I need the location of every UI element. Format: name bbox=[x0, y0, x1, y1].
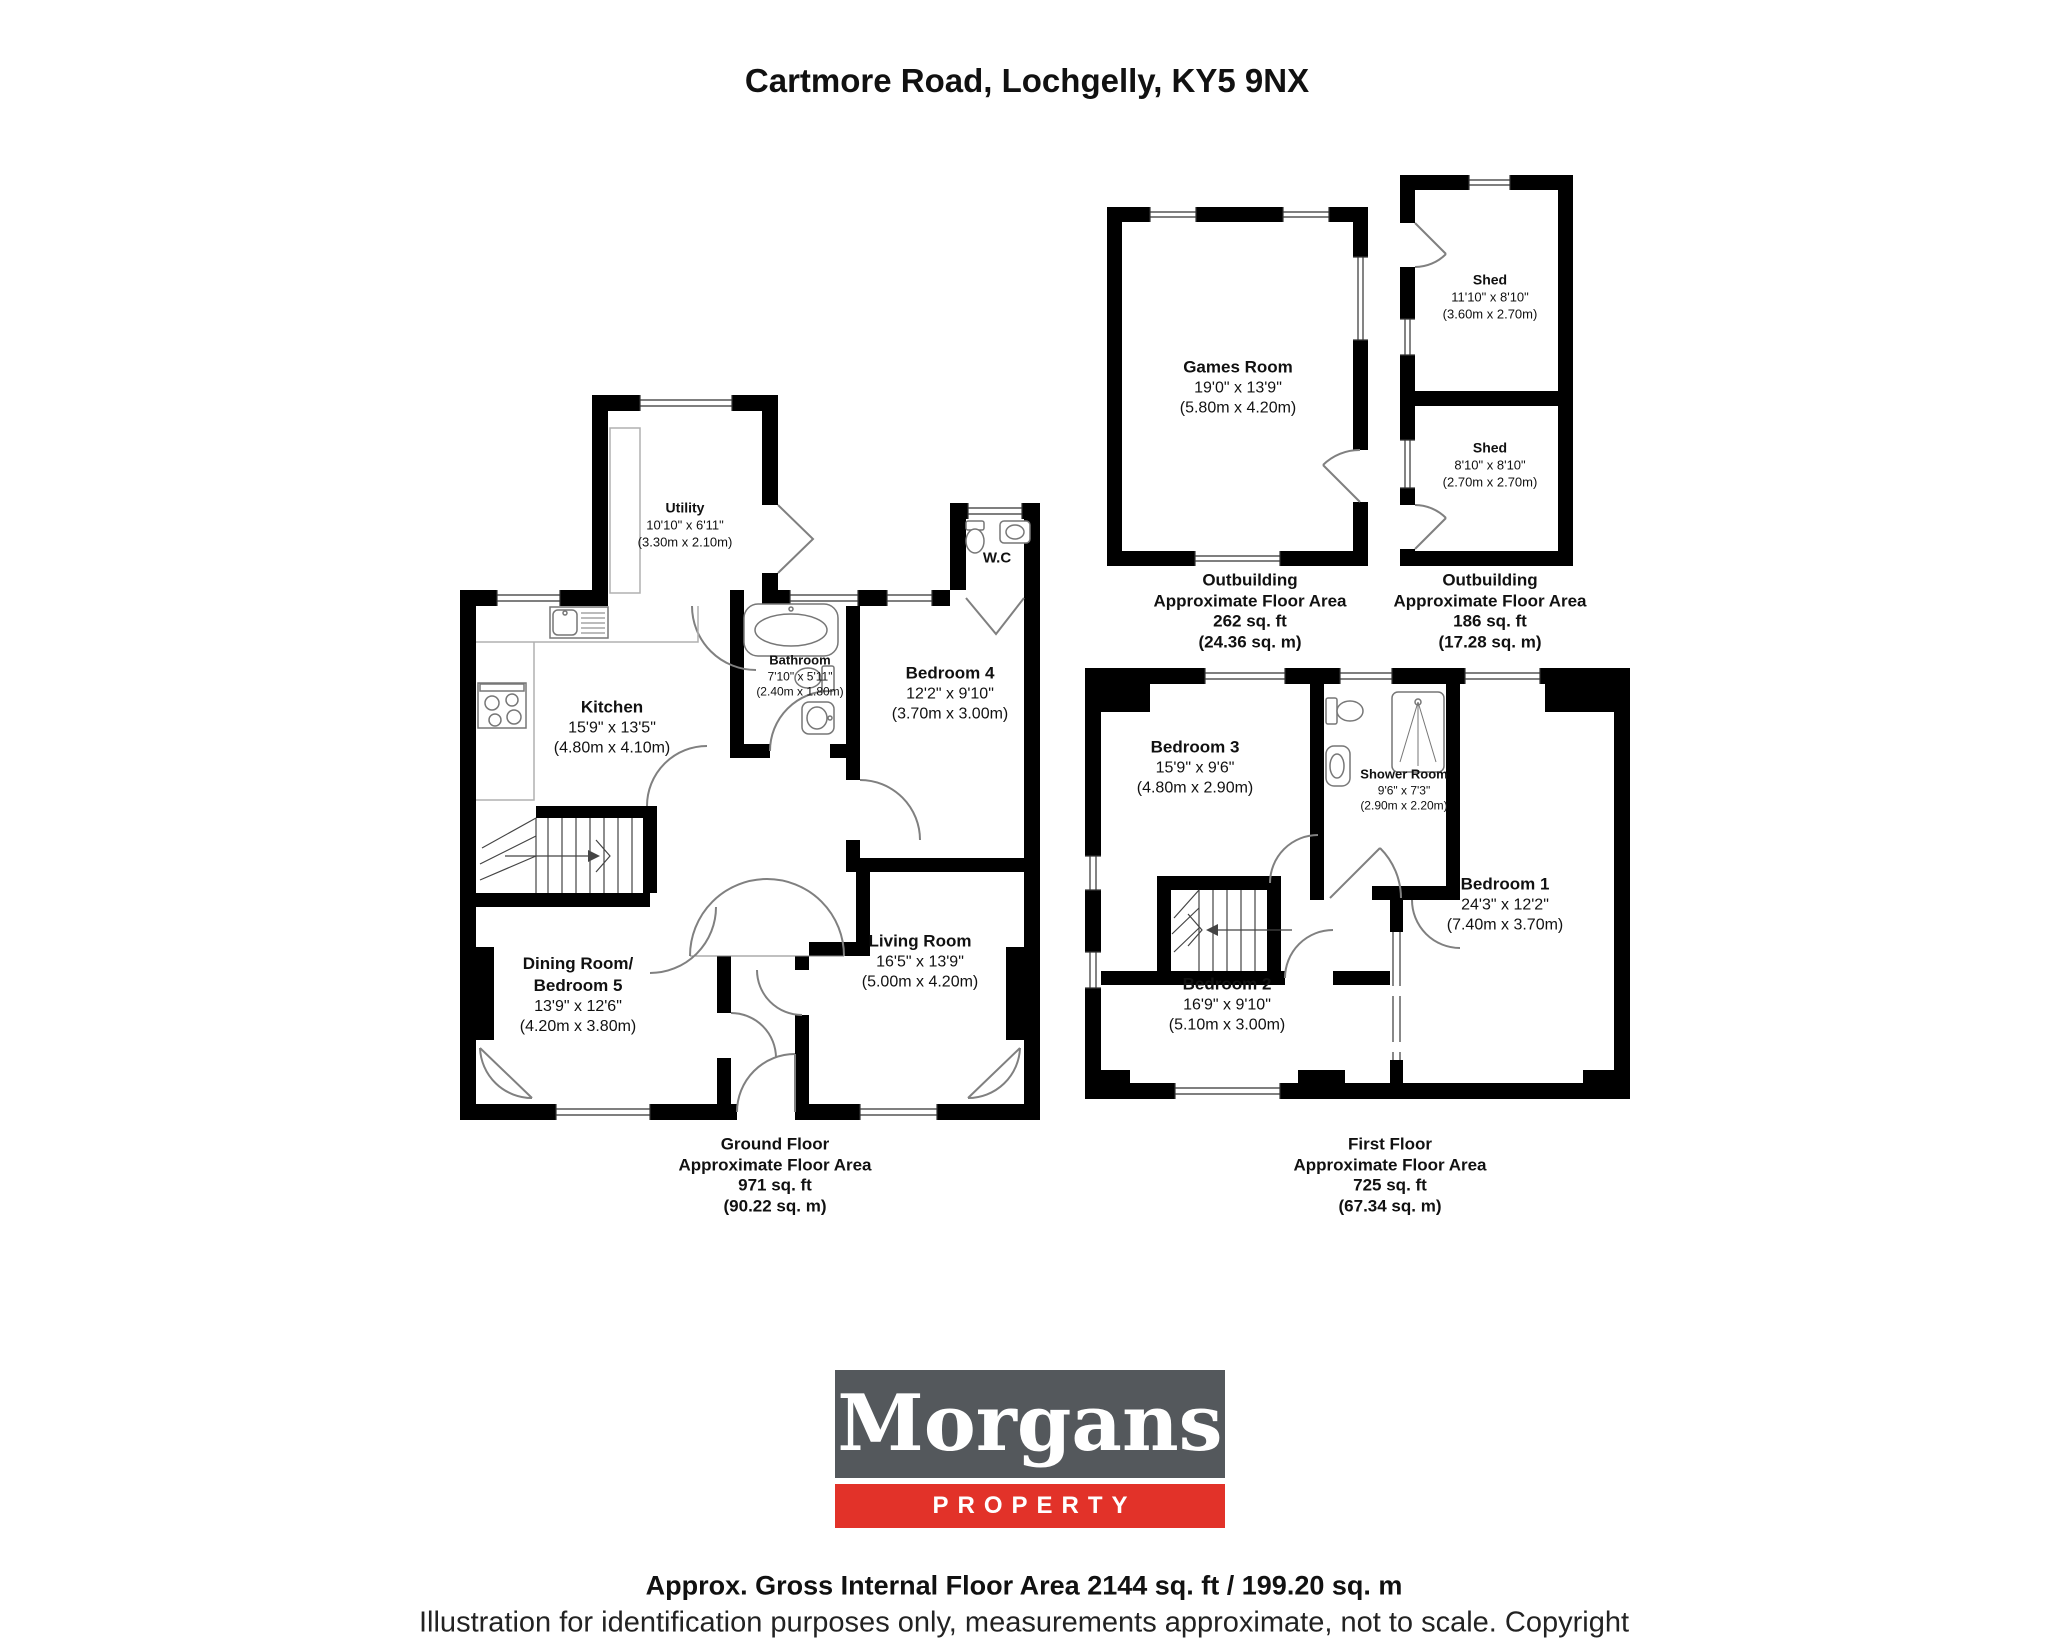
room-label-bathroom: Bathroom 7'10" x 5'11" (2.40m x 1.80m) bbox=[756, 652, 843, 699]
shower-toilet-icon bbox=[1326, 698, 1363, 724]
agency-logo: Morgans PROPERTY bbox=[835, 1370, 1225, 1528]
sheds-windows bbox=[1400, 175, 1510, 549]
page-title: Cartmore Road, Lochgelly, KY5 9NX bbox=[745, 62, 1309, 100]
kitchen-sink-icon bbox=[550, 607, 608, 638]
floorplan-page: Cartmore Road, Lochgelly, KY5 9NX Games … bbox=[0, 0, 2048, 1647]
area-label-outbuilding-left: Outbuilding Approximate Floor Area 262 s… bbox=[1153, 571, 1346, 654]
agency-logo-brand-box: Morgans bbox=[835, 1370, 1225, 1478]
agency-logo-brand: Morgans bbox=[837, 1385, 1222, 1463]
room-label-dining: Dining Room/ Bedroom 5 13'9" x 12'6" (4.… bbox=[520, 953, 636, 1037]
area-label-ground-floor: Ground Floor Approximate Floor Area 971 … bbox=[678, 1135, 871, 1218]
room-label-shed-large: Shed 11'10" x 8'10" (3.60m x 2.70m) bbox=[1443, 271, 1538, 322]
room-label-utility: Utility 10'10" x 6'11" (3.30m x 2.10m) bbox=[638, 499, 733, 550]
room-label-shower-room: Shower Room 9'6" x 7'3" (2.90m x 2.20m) bbox=[1360, 766, 1447, 813]
agency-logo-tagline: PROPERTY bbox=[923, 1494, 1136, 1518]
room-label-bedroom4: Bedroom 4 12'2" x 9'10" (3.70m x 3.00m) bbox=[892, 663, 1008, 726]
gross-area-line: Approx. Gross Internal Floor Area 2144 s… bbox=[646, 1571, 1403, 1602]
room-label-bedroom1: Bedroom 1 24'3" x 12'2" (7.40m x 3.70m) bbox=[1447, 874, 1563, 937]
room-label-kitchen: Kitchen 15'9" x 13'5" (4.80m x 4.10m) bbox=[554, 697, 670, 760]
wc-toilet-icon bbox=[966, 521, 984, 553]
shower-sink-icon bbox=[1326, 746, 1350, 786]
outbuilding-sheds bbox=[1400, 175, 1573, 566]
area-label-first-floor: First Floor Approximate Floor Area 725 s… bbox=[1293, 1135, 1486, 1218]
agency-logo-tagline-box: PROPERTY bbox=[835, 1484, 1225, 1528]
shower-icon bbox=[1392, 692, 1444, 772]
stove-icon bbox=[478, 683, 526, 728]
room-label-wc: W.C bbox=[983, 548, 1011, 567]
sheds-doors bbox=[1415, 223, 1446, 549]
room-label-bedroom3: Bedroom 3 15'9" x 9'6" (4.80m x 2.90m) bbox=[1137, 737, 1253, 800]
stairs-ground-icon bbox=[480, 818, 632, 893]
first-floor-doors bbox=[1270, 835, 1460, 978]
bathroom-sink-icon bbox=[802, 702, 834, 734]
room-label-living: Living Room 16'5" x 13'9" (5.00m x 4.20m… bbox=[862, 931, 978, 994]
bathtub-icon bbox=[744, 604, 838, 656]
room-label-bedroom2: Bedroom 2 16'9" x 9'10" (5.10m x 3.00m) bbox=[1169, 974, 1285, 1037]
disclaimer-line: Illustration for identification purposes… bbox=[419, 1607, 1629, 1640]
room-label-shed-small: Shed 8'10" x 8'10" (2.70m x 2.70m) bbox=[1443, 439, 1538, 490]
wc-sink-icon bbox=[1000, 521, 1030, 543]
area-label-outbuilding-right: Outbuilding Approximate Floor Area 186 s… bbox=[1393, 571, 1586, 654]
room-label-games-room: Games Room 19'0" x 13'9" (5.80m x 4.20m) bbox=[1180, 357, 1296, 420]
